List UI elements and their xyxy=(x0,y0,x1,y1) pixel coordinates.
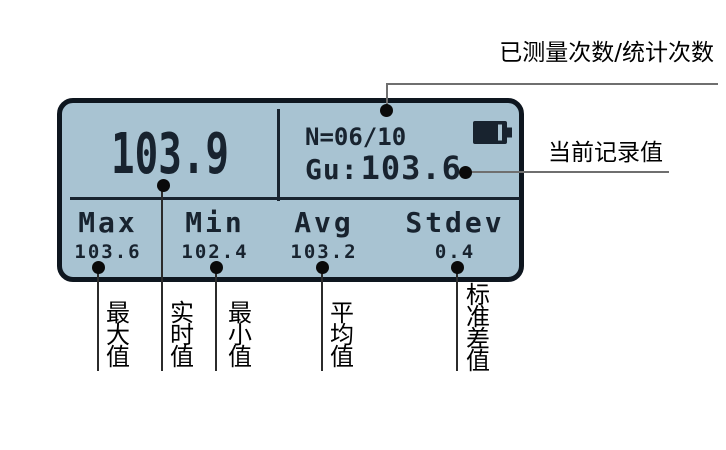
stat-stdev: Stdev 0.4 xyxy=(395,209,515,262)
stat-value: 103.6 xyxy=(48,243,168,262)
callout-dot-min xyxy=(210,261,223,274)
callout-dot-max xyxy=(92,261,105,274)
callout-line-realtime xyxy=(161,185,163,371)
callout-line-avg xyxy=(321,267,323,371)
lcd-screen: 103.9 N=06/10 Gu: 103.6 Max 103.6 Min 10… xyxy=(57,98,524,282)
callout-dot-record xyxy=(459,166,472,179)
annotation-max: 最大值 xyxy=(104,302,132,368)
stat-value: 0.4 xyxy=(395,243,515,262)
callout-line-record xyxy=(465,171,669,173)
callout-line-stdev xyxy=(456,268,458,371)
stat-label: Avg xyxy=(264,209,384,237)
callout-line-counter-h xyxy=(388,83,718,85)
callout-dot-realtime xyxy=(157,179,170,192)
device-display-diagram: 已测量次数/统计次数 当前记录值 103.9 N=06/10 Gu: 103.6… xyxy=(0,0,726,450)
callout-line-min xyxy=(215,268,217,371)
stat-label: Max xyxy=(48,209,168,237)
callout-line-max xyxy=(97,268,99,371)
annotation-realtime: 实时值 xyxy=(168,302,196,368)
stat-value: 103.2 xyxy=(264,243,384,262)
main-reading: 103.9 xyxy=(94,127,245,183)
stat-label: Stdev xyxy=(395,209,515,237)
callout-dot-avg xyxy=(316,261,329,274)
record-label: Gu: xyxy=(305,153,359,186)
callout-dot-stdev xyxy=(451,261,464,274)
annotation-measure-count: 已测量次数/统计次数 xyxy=(499,40,714,68)
battery-icon xyxy=(473,121,513,144)
stat-avg: Avg 103.2 xyxy=(264,209,384,262)
annotation-avg: 平均值 xyxy=(328,302,356,368)
stat-value: 102.4 xyxy=(155,243,275,262)
measurement-counter: N=06/10 xyxy=(305,123,406,151)
panel-divider-vertical xyxy=(277,109,280,201)
stat-max: Max 103.6 xyxy=(48,209,168,262)
callout-dot-counter xyxy=(380,104,393,117)
annotation-stdev: 标准差值 xyxy=(464,284,492,372)
panel-divider-horizontal xyxy=(70,197,520,200)
record-value: 103.6 xyxy=(361,149,462,187)
current-record-row: Gu: 103.6 xyxy=(305,149,462,187)
annotation-current-record: 当前记录值 xyxy=(548,140,663,168)
stat-min: Min 102.4 xyxy=(155,209,275,262)
stat-label: Min xyxy=(155,209,275,237)
annotation-min: 最小值 xyxy=(226,302,254,368)
